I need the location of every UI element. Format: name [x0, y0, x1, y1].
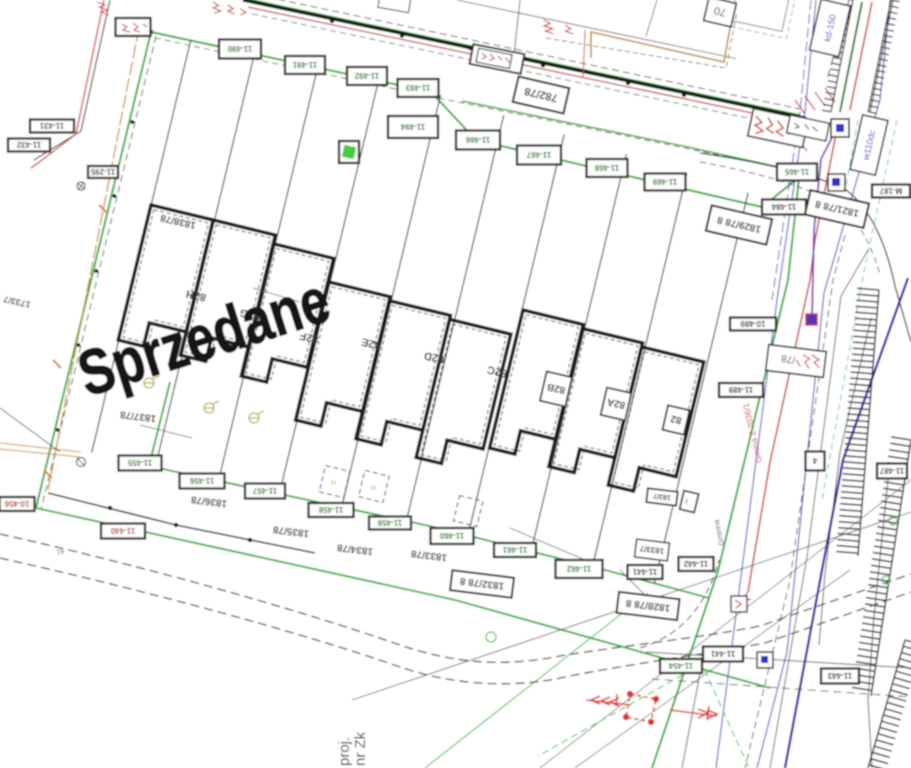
svg-text:11-469: 11-469	[652, 177, 677, 186]
svg-text:11-441: 11-441	[710, 649, 735, 658]
svg-text:proj.: proj.	[336, 737, 353, 766]
svg-text:M-187: M-187	[879, 186, 902, 195]
svg-text:11-456: 11-456	[189, 476, 214, 485]
svg-text:4: 4	[812, 456, 817, 465]
svg-text:11-467: 11-467	[526, 150, 551, 159]
svg-text:nr Zk: nr Zk	[352, 731, 369, 766]
svg-text:H: H	[371, 483, 376, 490]
svg-text:11-490: 11-490	[227, 44, 252, 53]
svg-text:11-440: 11-440	[110, 526, 135, 535]
svg-text:11-432: 11-432	[16, 140, 41, 149]
svg-text:11-460: 11-460	[439, 531, 464, 540]
svg-text:11-492: 11-492	[354, 71, 379, 80]
svg-text:11-431: 11-431	[39, 121, 64, 130]
svg-text:11-484: 11-484	[771, 202, 796, 211]
svg-text:11-462: 11-462	[566, 564, 591, 573]
svg-text:/78: /78	[780, 352, 796, 365]
svg-text:11-468: 11-468	[594, 163, 619, 172]
svg-text:11-459: 11-459	[377, 518, 402, 527]
svg-text:41: 41	[56, 547, 65, 555]
svg-text:11-441: 11-441	[632, 567, 657, 576]
svg-text:11-461: 11-461	[502, 545, 527, 554]
svg-text:11-493: 11-493	[405, 83, 430, 92]
svg-text:10-489: 10-489	[740, 319, 765, 328]
svg-text:11-489: 11-489	[728, 385, 753, 394]
svg-text:11-455: 11-455	[127, 458, 152, 467]
svg-text:11-442: 11-442	[683, 559, 708, 568]
svg-text:11-295: 11-295	[90, 167, 115, 176]
svg-text:11-487: 11-487	[879, 466, 904, 475]
svg-text:11-465: 11-465	[784, 167, 809, 176]
svg-text:11-466: 11-466	[465, 135, 490, 144]
svg-text:11-458: 11-458	[318, 505, 343, 514]
svg-text:10-456: 10-456	[4, 499, 29, 508]
svg-text:11-454: 11-454	[668, 661, 693, 670]
svg-text:11-494: 11-494	[400, 122, 425, 131]
svg-text:11-491: 11-491	[292, 60, 317, 69]
svg-text:11-443: 11-443	[827, 671, 852, 680]
svg-text:H: H	[331, 478, 336, 485]
svg-text:11-457: 11-457	[252, 486, 277, 495]
